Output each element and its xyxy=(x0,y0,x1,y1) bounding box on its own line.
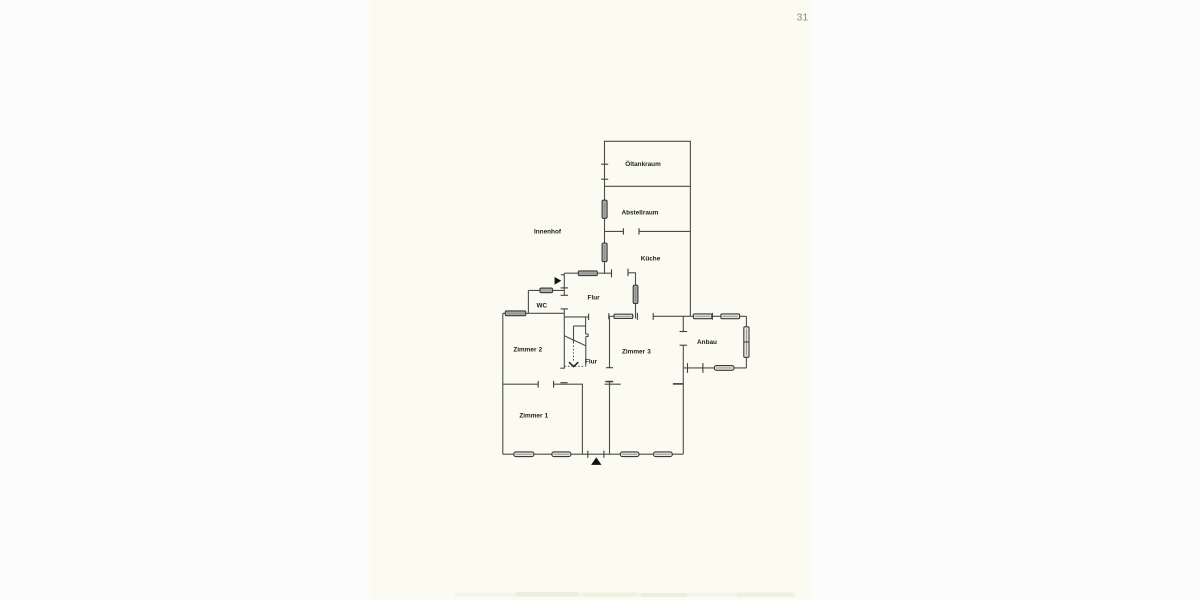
svg-text:Zimmer1: Zimmer1 xyxy=(519,413,548,420)
svg-text:Anbau: Anbau xyxy=(697,339,717,346)
svg-text:Öltankraum: Öltankraum xyxy=(625,159,661,168)
svg-text:Innenhof: Innenhof xyxy=(534,229,562,236)
svg-text:Zimmer2: Zimmer2 xyxy=(513,346,542,353)
svg-text:Zimmer3: Zimmer3 xyxy=(622,348,651,355)
svg-text:Flur: Flur xyxy=(588,294,601,301)
svg-text:WC: WC xyxy=(536,303,547,310)
svg-text:31: 31 xyxy=(797,12,809,24)
svg-text:Flur: Flur xyxy=(585,358,598,365)
svg-text:Küche: Küche xyxy=(641,256,661,263)
svg-text:Abstellraum: Abstellraum xyxy=(622,210,659,217)
